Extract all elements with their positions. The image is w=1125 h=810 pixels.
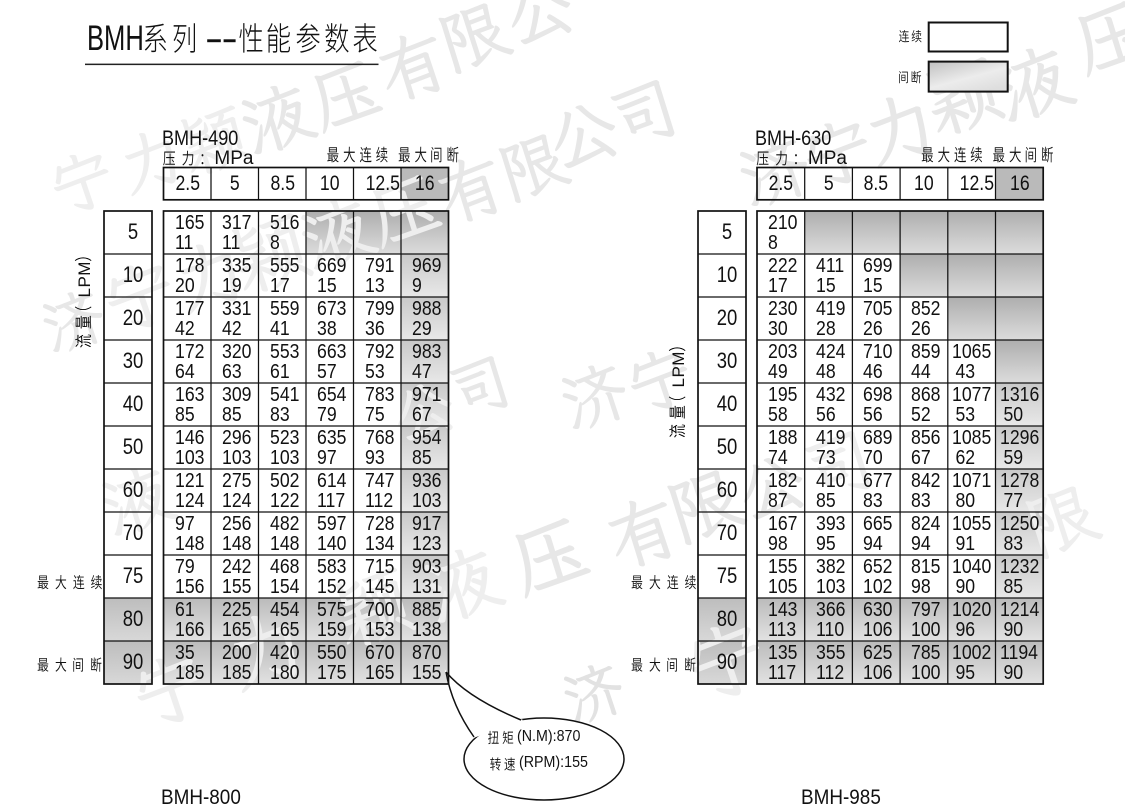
svg-text:LPM: LPM [75, 261, 94, 297]
svg-text:LPM: LPM [669, 351, 688, 387]
